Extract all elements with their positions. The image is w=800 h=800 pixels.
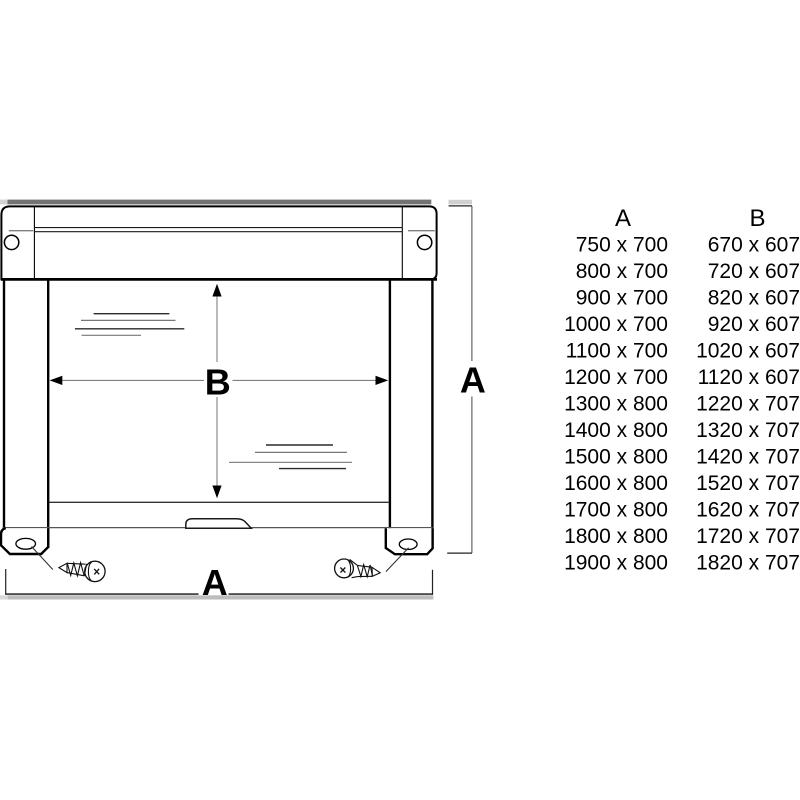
svg-text:1600 x 800: 1600 x 800 [564,472,668,495]
svg-text:A: A [202,562,228,603]
svg-text:1620 x 707: 1620 x 707 [696,499,800,522]
svg-text:1500 x 800: 1500 x 800 [564,446,668,469]
svg-text:B: B [205,362,231,403]
svg-text:1520 x 707: 1520 x 707 [696,472,800,495]
svg-text:1000 x 700: 1000 x 700 [564,313,668,336]
svg-text:1720 x 707: 1720 x 707 [696,525,800,548]
svg-text:920 x 607: 920 x 607 [708,313,800,336]
svg-text:800 x 700: 800 x 700 [576,260,668,283]
svg-text:1120 x 607: 1120 x 607 [698,366,800,389]
svg-text:900 x 700: 900 x 700 [576,287,668,310]
svg-text:1900 x 800: 1900 x 800 [564,552,668,575]
svg-text:1220 x 707: 1220 x 707 [696,393,800,416]
svg-text:1200 x 700: 1200 x 700 [564,366,668,389]
svg-text:1020 x 607: 1020 x 607 [696,340,800,363]
svg-text:B: B [749,205,765,232]
svg-text:1800 x 800: 1800 x 800 [564,525,668,548]
svg-text:1700 x 800: 1700 x 800 [564,499,668,522]
svg-text:820 x 607: 820 x 607 [708,287,800,310]
svg-text:1420 x 707: 1420 x 707 [696,446,800,469]
svg-text:720 x 607: 720 x 607 [708,260,800,283]
svg-text:750 x 700: 750 x 700 [576,234,668,257]
svg-text:1400 x 800: 1400 x 800 [564,419,668,442]
svg-text:670 x 607: 670 x 607 [708,234,800,257]
svg-text:1820 x 707: 1820 x 707 [696,552,800,575]
svg-text:1320 x 707: 1320 x 707 [696,419,800,442]
svg-text:1100 x 700: 1100 x 700 [566,340,668,363]
svg-text:A: A [460,360,486,401]
svg-text:A: A [615,205,631,232]
svg-text:1300 x 800: 1300 x 800 [564,393,668,416]
